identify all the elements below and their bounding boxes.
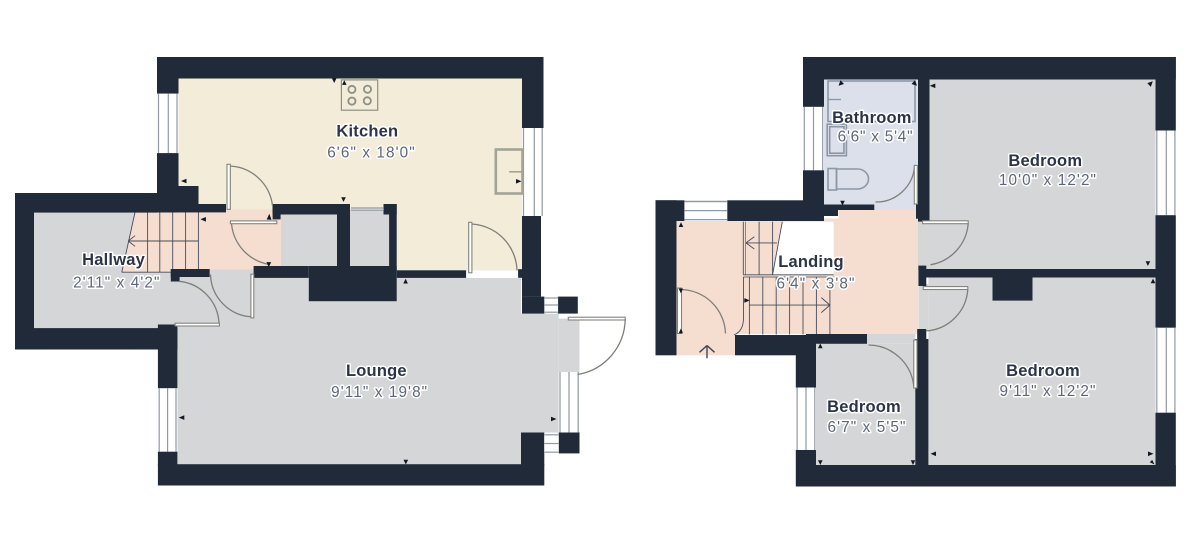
svg-text:Lounge: Lounge (346, 362, 407, 380)
svg-text:10'0" x 12'2": 10'0" x 12'2" (999, 172, 1097, 189)
svg-text:9'11" x 12'2": 9'11" x 12'2" (999, 383, 1096, 400)
svg-text:Landing: Landing (778, 253, 844, 271)
svg-text:2'11" x 4'2": 2'11" x 4'2" (73, 275, 160, 292)
svg-text:Bedroom: Bedroom (1008, 152, 1082, 170)
svg-text:Bathroom: Bathroom (832, 109, 912, 127)
svg-text:6'6" x 5'4": 6'6" x 5'4" (838, 129, 914, 146)
svg-text:6'7" x 5'5": 6'7" x 5'5" (828, 419, 907, 436)
svg-text:Bedroom: Bedroom (827, 398, 901, 416)
svg-text:Kitchen: Kitchen (336, 123, 398, 141)
svg-text:9'11" x 19'8": 9'11" x 19'8" (331, 384, 428, 401)
svg-text:Bedroom: Bedroom (1006, 362, 1080, 380)
svg-text:Hallway: Hallway (82, 251, 145, 269)
svg-text:6'4" x 3'8": 6'4" x 3'8" (777, 276, 856, 293)
svg-text:6'6" x 18'0": 6'6" x 18'0" (327, 145, 416, 162)
